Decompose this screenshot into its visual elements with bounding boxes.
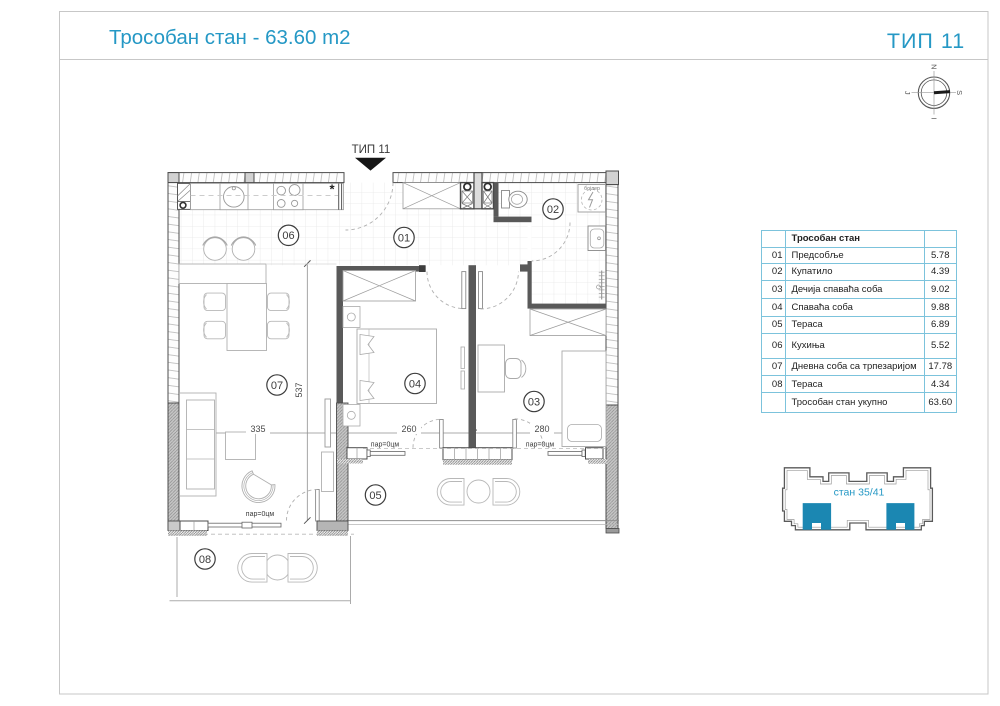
svg-text:05: 05: [369, 490, 381, 502]
svg-text:02: 02: [547, 204, 559, 216]
svg-text:335: 335: [250, 424, 265, 434]
svg-text:280: 280: [534, 424, 549, 434]
svg-text:08: 08: [199, 554, 211, 566]
svg-text:пар=0цм: пар=0цм: [371, 441, 400, 448]
svg-text:бојлер: бојлер: [584, 186, 600, 192]
svg-text:07: 07: [271, 380, 283, 392]
svg-text:пар=0цм: пар=0цм: [246, 511, 275, 518]
svg-text:I: I: [929, 118, 938, 120]
svg-text:стан 35/41: стан 35/41: [834, 487, 885, 499]
svg-text:J: J: [903, 91, 912, 95]
svg-text:пар=0цм: пар=0цм: [526, 441, 555, 448]
svg-text:03: 03: [528, 396, 540, 408]
svg-text:537: 537: [294, 382, 304, 397]
svg-text:260: 260: [401, 424, 416, 434]
svg-text:ТИП 11: ТИП 11: [352, 144, 391, 156]
svg-text:01: 01: [398, 232, 410, 244]
svg-text:04: 04: [409, 378, 421, 390]
svg-text:S: S: [955, 90, 964, 95]
svg-text:06: 06: [282, 230, 294, 242]
svg-text:N: N: [929, 64, 938, 69]
